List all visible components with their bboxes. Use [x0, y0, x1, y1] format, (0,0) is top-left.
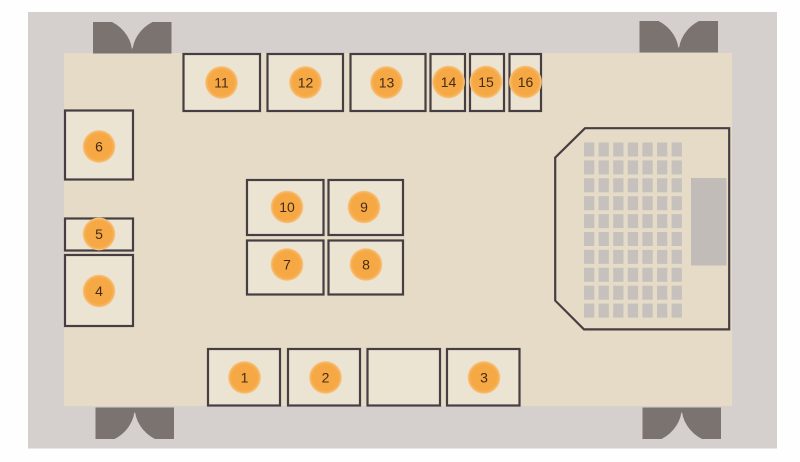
svg-text:3: 3: [480, 370, 488, 386]
svg-text:11: 11: [214, 75, 229, 91]
svg-text:10: 10: [279, 199, 295, 215]
svg-text:8: 8: [362, 257, 370, 273]
svg-text:2: 2: [322, 370, 330, 386]
svg-text:1: 1: [241, 370, 249, 386]
svg-text:12: 12: [298, 75, 314, 91]
svg-text:14: 14: [441, 74, 457, 90]
svg-text:9: 9: [360, 199, 368, 215]
svg-text:6: 6: [95, 139, 103, 155]
svg-text:16: 16: [518, 74, 534, 90]
svg-text:4: 4: [95, 283, 103, 299]
svg-text:7: 7: [283, 257, 291, 273]
svg-text:5: 5: [95, 226, 103, 242]
svg-text:13: 13: [379, 75, 395, 91]
svg-text:15: 15: [478, 74, 494, 90]
